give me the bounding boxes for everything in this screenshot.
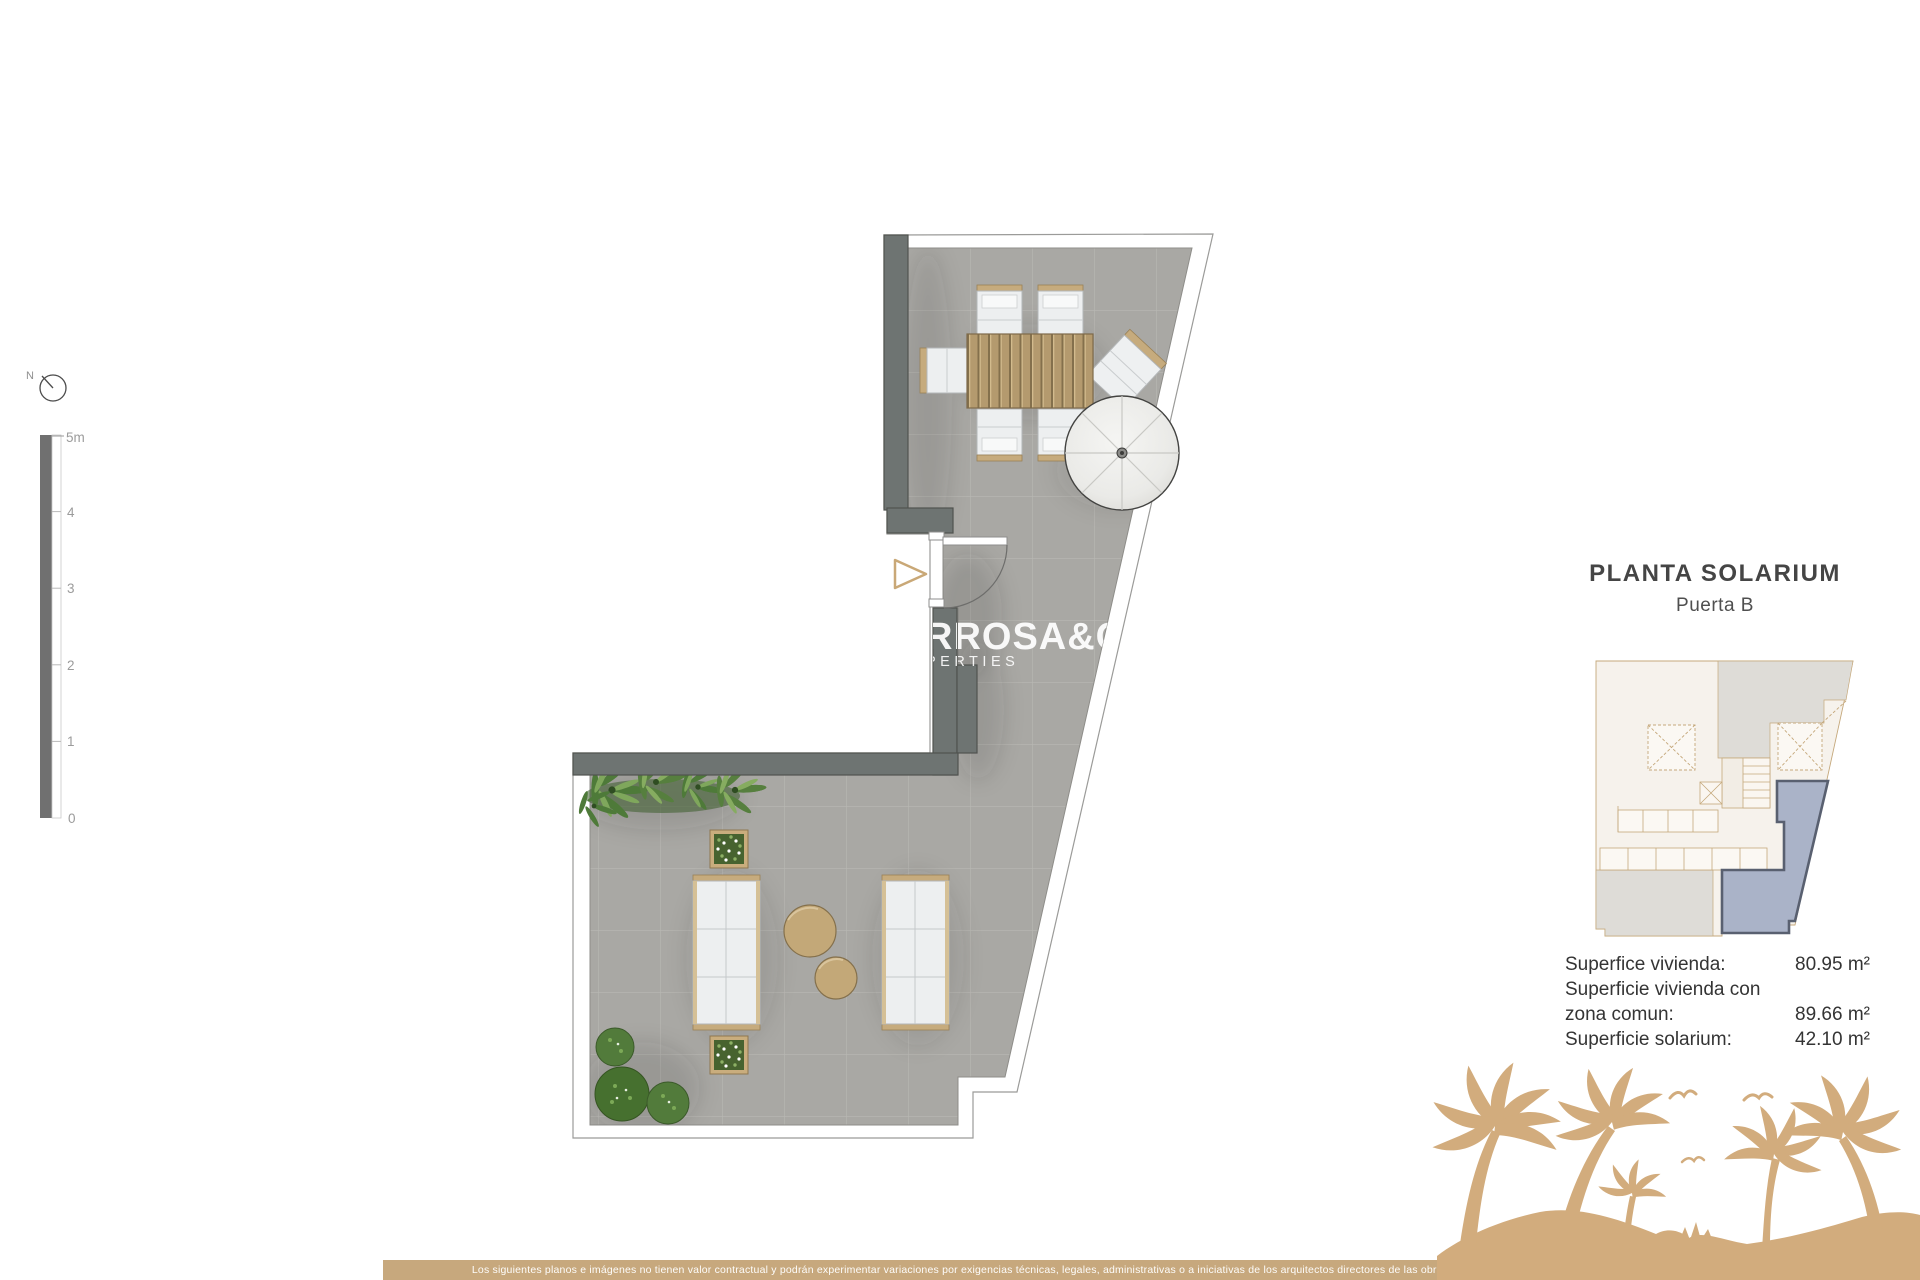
area-label: Superfice vivienda: — [1565, 952, 1795, 977]
sun-lounger — [977, 409, 1022, 461]
floor-plan-svg: RROSA&CO PERTIES N 5m 4 3 2 1 0 — [0, 0, 1920, 1280]
watermark-line2: PERTIES — [926, 654, 1019, 670]
area-row: Superficie vivienda con — [1565, 977, 1895, 1002]
area-label: zona comun: — [1565, 1002, 1795, 1027]
page: RROSA&CO PERTIES N 5m 4 3 2 1 0 — [0, 0, 1920, 1280]
key-plan-gray-bottomleft — [1596, 870, 1713, 936]
planter-box — [710, 830, 748, 868]
umbrella — [1065, 396, 1179, 510]
area-value: 42.10 m² — [1795, 1027, 1895, 1052]
area-row: zona comun: 89.66 m² — [1565, 1002, 1895, 1027]
area-value — [1795, 977, 1895, 1002]
sun-lounger — [1038, 285, 1083, 335]
sun-lounger — [977, 285, 1022, 335]
page-title: PLANTA SOLARIUM — [1545, 560, 1885, 588]
wall-step — [957, 665, 977, 753]
scale-label-4: 4 — [67, 505, 75, 520]
sun-lounger — [920, 348, 967, 393]
key-plan — [1596, 661, 1853, 936]
double-sun-bed — [693, 875, 760, 1030]
scale-label-1: 1 — [67, 734, 75, 749]
door-leaf — [943, 537, 1007, 545]
area-row: Superficie solarium: 42.10 m² — [1565, 1027, 1895, 1052]
round-table — [815, 957, 857, 999]
page-subtitle: Puerta B — [1545, 595, 1885, 617]
double-sun-bed — [882, 875, 949, 1030]
compass-needle — [42, 376, 53, 388]
wooden-table — [967, 334, 1093, 408]
sand-mound — [1437, 1210, 1920, 1280]
scale-label-2: 2 — [67, 658, 75, 673]
round-table — [784, 905, 836, 957]
title-block: PLANTA SOLARIUM Puerta B — [1545, 560, 1885, 617]
wall-jog — [887, 508, 953, 533]
compass-north-label: N — [26, 370, 34, 382]
wall-lower-terrace — [573, 753, 958, 775]
area-label: Superficie vivienda con — [1565, 977, 1795, 1002]
scale-label-0: 0 — [68, 811, 76, 826]
compass: N — [26, 370, 66, 401]
area-value: 89.66 m² — [1795, 1002, 1895, 1027]
area-row: Superfice vivienda: 80.95 m² — [1565, 952, 1895, 977]
scale-label-3: 3 — [67, 581, 75, 596]
wall-left — [884, 235, 908, 510]
area-measurements: Superfice vivienda: 80.95 m² Superficie … — [1565, 952, 1895, 1052]
entrance-arrow-icon — [895, 560, 926, 588]
area-value: 80.95 m² — [1795, 952, 1895, 977]
area-label: Superficie solarium: — [1565, 1027, 1795, 1052]
grass-tuft — [1678, 1222, 1714, 1244]
scale-bar: 5m 4 3 2 1 0 — [40, 430, 85, 826]
planter-box — [710, 1036, 748, 1074]
scale-label-5m: 5m — [66, 430, 85, 445]
main-floor-plan: RROSA&CO PERTIES — [573, 234, 1213, 1138]
palm-beach-illustration — [1431, 1061, 1920, 1280]
